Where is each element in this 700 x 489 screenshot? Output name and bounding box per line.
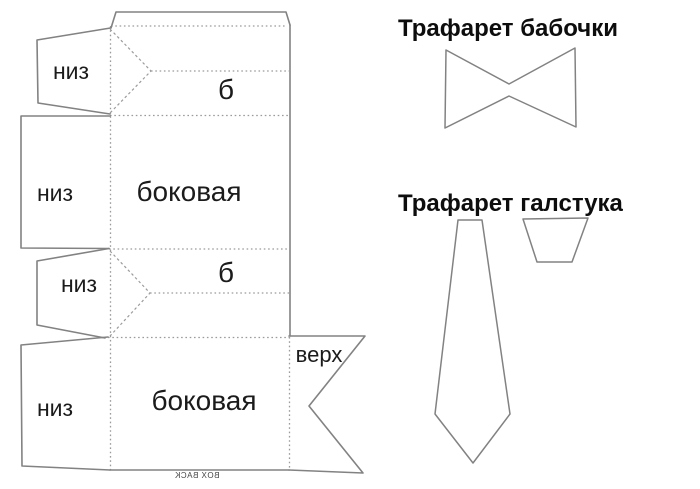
flap-label-3: низ — [61, 271, 97, 297]
fold-label-1: б — [218, 74, 234, 105]
flap-label-1: низ — [53, 58, 89, 84]
top-label: верх — [296, 342, 343, 367]
necktie-knot-shape — [523, 218, 588, 262]
bowtie-title: Трафарет бабочки — [398, 15, 618, 42]
bowtie-shape — [445, 48, 576, 128]
fold-label-2: б — [218, 257, 234, 288]
side-label-2: боковая — [151, 385, 256, 416]
necktie-stencil: Трафарет галстука — [398, 190, 624, 463]
craft-pattern-diagram: низ низ низ низ б б боковая боковая верх… — [0, 0, 700, 489]
fold-triangle-2 — [110, 251, 150, 336]
diagram-canvas: низ низ низ низ б б боковая боковая верх… — [0, 0, 700, 489]
mirrored-watermark: BOX BACK — [174, 471, 219, 480]
flap-label-2: низ — [37, 180, 73, 206]
fold-triangle-1 — [110, 29, 151, 113]
necktie-shape — [435, 220, 510, 463]
side-label-1: боковая — [136, 176, 241, 207]
shirt-box-pattern: низ низ низ низ б б боковая боковая верх… — [21, 12, 365, 480]
necktie-title: Трафарет галстука — [398, 190, 624, 217]
flap-label-4: низ — [37, 395, 73, 421]
bowtie-stencil: Трафарет бабочки — [398, 15, 618, 128]
